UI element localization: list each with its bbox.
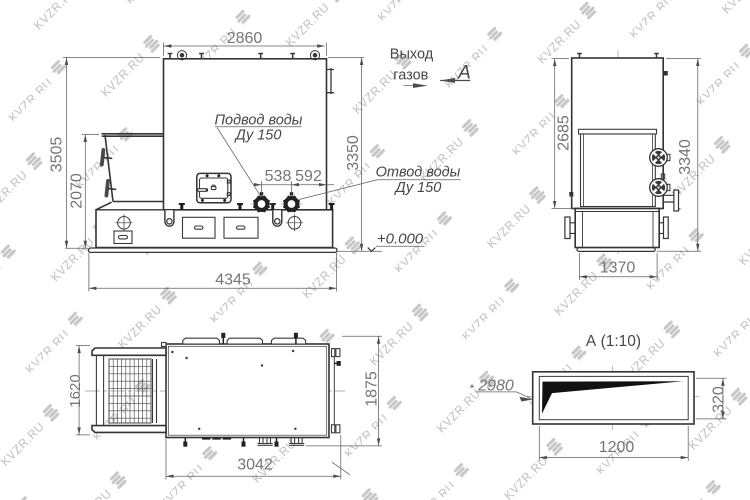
svg-text:2860: 2860	[227, 30, 263, 47]
svg-text:А (1:10): А (1:10)	[586, 333, 641, 350]
svg-text:2685: 2685	[556, 115, 573, 151]
svg-text:592: 592	[295, 168, 322, 185]
svg-text:газов: газов	[393, 68, 428, 84]
svg-text:Ду 150: Ду 150	[393, 180, 441, 196]
svg-text:3340: 3340	[677, 139, 694, 175]
svg-text:4345: 4345	[215, 272, 251, 289]
svg-text:538: 538	[265, 168, 292, 185]
svg-text:1620: 1620	[67, 374, 84, 407]
svg-text:Ду 150: Ду 150	[234, 127, 282, 143]
svg-text:1200: 1200	[599, 439, 635, 456]
svg-text:+0.000: +0.000	[377, 231, 424, 248]
svg-text:3350: 3350	[345, 135, 362, 171]
svg-text:Выход: Выход	[390, 47, 434, 63]
svg-text:2070: 2070	[69, 173, 86, 209]
svg-text:320: 320	[711, 386, 728, 413]
svg-text:3505: 3505	[49, 137, 66, 173]
svg-text:Отвод воды: Отвод воды	[376, 164, 461, 180]
svg-text:1370: 1370	[600, 260, 636, 277]
svg-text:Подвод воды: Подвод воды	[215, 113, 303, 129]
svg-text:1875: 1875	[363, 371, 380, 407]
svg-text:А: А	[457, 63, 471, 84]
svg-text:3042: 3042	[237, 457, 273, 474]
